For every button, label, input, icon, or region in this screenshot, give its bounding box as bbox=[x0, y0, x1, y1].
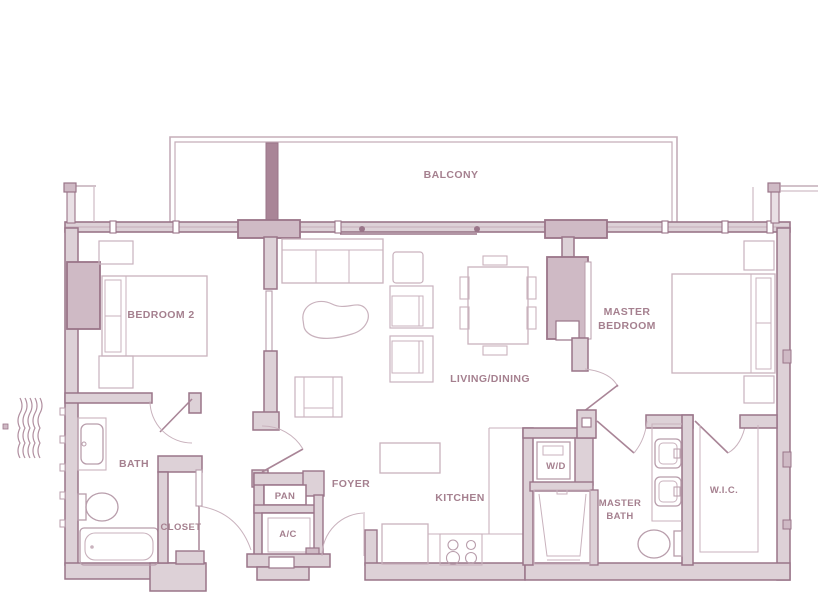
window-mullion bbox=[110, 221, 116, 233]
door-arc bbox=[199, 506, 251, 550]
double-vanity bbox=[652, 424, 682, 521]
closet-wall bbox=[254, 505, 316, 513]
balcony-rail-inner bbox=[175, 142, 672, 222]
wall-segment bbox=[65, 393, 152, 403]
laundry-label: W/D bbox=[546, 461, 566, 472]
closet-wall bbox=[158, 472, 168, 563]
room-master-bath: MASTER BATH bbox=[597, 415, 693, 565]
wic-label: W.I.C. bbox=[710, 485, 738, 496]
wall-segment bbox=[682, 415, 693, 565]
marker-square bbox=[3, 424, 8, 429]
window-mullion bbox=[335, 221, 341, 233]
bath-label: BATH bbox=[119, 458, 149, 470]
living-dining-label: LIVING/DINING bbox=[450, 373, 530, 385]
wall-tick bbox=[60, 520, 65, 527]
wall-jog bbox=[783, 520, 791, 529]
kitchen-island bbox=[380, 443, 440, 473]
room-laundry: W/D bbox=[523, 410, 598, 565]
toilet bbox=[78, 493, 118, 521]
burner bbox=[448, 540, 458, 550]
window-mullion bbox=[662, 221, 668, 233]
wall-stem bbox=[572, 338, 588, 371]
accent-chair-outline bbox=[295, 377, 342, 417]
master-wall bbox=[547, 237, 591, 371]
wall-segment bbox=[523, 428, 533, 565]
shower-outline bbox=[534, 490, 590, 564]
swing-door-leaf bbox=[262, 449, 303, 472]
floor-plan-page: BALCONY bbox=[0, 0, 821, 616]
room-kitchen: KITCHEN bbox=[380, 428, 523, 565]
faucet bbox=[82, 442, 86, 446]
room-living-dining: LIVING/DINING bbox=[282, 239, 536, 417]
bottom-wall-closet-step bbox=[150, 563, 206, 591]
room-foyer: FOYER bbox=[322, 478, 370, 556]
refrigerator bbox=[382, 524, 428, 564]
dining-set bbox=[460, 256, 536, 355]
sink bbox=[81, 424, 103, 464]
sofa-outline bbox=[282, 239, 383, 283]
room-master-bedroom: MASTER BEDROOM bbox=[547, 237, 775, 412]
burner bbox=[466, 553, 477, 564]
wall-segment bbox=[158, 456, 202, 472]
wall-segment bbox=[264, 351, 277, 413]
utility-closets: PAN A/C bbox=[247, 426, 330, 580]
shower-pan bbox=[539, 494, 586, 556]
master-bedroom-label-1: MASTER bbox=[604, 306, 651, 318]
toilet-bowl bbox=[638, 530, 670, 558]
wave-line bbox=[18, 398, 22, 458]
door-arc bbox=[585, 369, 618, 387]
toilet-tank bbox=[78, 494, 86, 520]
bed bbox=[672, 274, 775, 373]
kitchen-label: KITCHEN bbox=[435, 492, 484, 504]
swing-door-leaf bbox=[160, 399, 192, 432]
wave-line bbox=[23, 398, 27, 458]
entry-jamb bbox=[365, 530, 377, 565]
toilet bbox=[638, 530, 682, 558]
door-arc bbox=[150, 401, 192, 443]
wall-header-block bbox=[545, 220, 607, 238]
window-mullion bbox=[722, 221, 728, 233]
armchair bbox=[390, 336, 433, 382]
burner bbox=[467, 541, 476, 550]
swing-door-leaf bbox=[597, 421, 634, 453]
accent-chair bbox=[295, 377, 342, 417]
master-bath-label-1: MASTER bbox=[599, 498, 642, 509]
armchair-seat bbox=[392, 341, 423, 373]
wall-header-block bbox=[238, 220, 300, 238]
wave-line bbox=[38, 398, 42, 458]
window-mullion bbox=[173, 221, 179, 233]
pier-cap bbox=[64, 183, 76, 192]
armchair-outline bbox=[390, 336, 433, 382]
floor-plan-drawing: BALCONY bbox=[0, 0, 821, 616]
tub-basin bbox=[85, 533, 153, 560]
column-notch bbox=[556, 321, 579, 340]
nightstand bbox=[99, 356, 133, 388]
dining-chair bbox=[483, 256, 507, 265]
room-bath: BATH bbox=[78, 418, 158, 565]
master-bath-label-2: BATH bbox=[606, 511, 633, 522]
room-balcony: BALCONY bbox=[170, 137, 677, 223]
swing-door-leaf bbox=[583, 385, 618, 412]
dining-chair bbox=[483, 346, 507, 355]
structural-column bbox=[67, 262, 100, 329]
water-symbol bbox=[3, 398, 42, 458]
pocket-door-panel bbox=[266, 291, 272, 351]
coffee-table bbox=[303, 301, 369, 338]
sliding-door-handle bbox=[474, 226, 480, 232]
armchair bbox=[390, 286, 433, 328]
wave-line bbox=[33, 398, 37, 458]
shower-wall bbox=[590, 490, 598, 565]
wall-jog bbox=[783, 350, 791, 363]
ac-label: A/C bbox=[279, 529, 297, 540]
dining-table bbox=[468, 267, 528, 344]
closet-label: CLOSET bbox=[161, 522, 202, 533]
vanity bbox=[78, 418, 106, 470]
bedroom2-label: BEDROOM 2 bbox=[127, 309, 194, 321]
balcony-divider-wall bbox=[266, 143, 278, 223]
wall-jog bbox=[783, 452, 791, 467]
washer-dryer-controls bbox=[543, 446, 563, 455]
right-pier bbox=[753, 183, 818, 223]
nightstand bbox=[99, 241, 133, 264]
footing-notch bbox=[269, 557, 294, 568]
left-pier bbox=[64, 183, 96, 223]
stove bbox=[440, 534, 482, 565]
pantry-label: PAN bbox=[275, 491, 296, 502]
sofa bbox=[282, 239, 383, 283]
armchair-outline bbox=[390, 286, 433, 328]
shower bbox=[534, 490, 598, 565]
tub-drain bbox=[90, 545, 94, 549]
wall-segment bbox=[264, 237, 277, 289]
nightstand bbox=[744, 241, 774, 270]
wall-notch bbox=[582, 418, 591, 427]
foyer-label: FOYER bbox=[332, 478, 370, 490]
pier-cap bbox=[768, 183, 780, 192]
wall-face bbox=[196, 470, 202, 506]
wall-tick bbox=[60, 436, 65, 443]
ottoman bbox=[393, 252, 423, 283]
toilet-tank bbox=[674, 531, 682, 556]
wall-tick bbox=[60, 408, 65, 415]
toilet-bowl bbox=[86, 493, 118, 521]
wall-tick bbox=[60, 464, 65, 471]
door-arc bbox=[634, 421, 647, 453]
wall-segment bbox=[575, 438, 593, 485]
master-bedroom-label-2: BEDROOM bbox=[598, 320, 656, 332]
wave-line bbox=[28, 398, 32, 458]
armchair-seat bbox=[392, 296, 423, 326]
balcony-label: BALCONY bbox=[424, 169, 479, 181]
room-wic: W.I.C. bbox=[695, 415, 777, 552]
door-jamb bbox=[189, 393, 201, 413]
nightstand bbox=[744, 376, 774, 403]
bathtub bbox=[80, 528, 158, 565]
entry-door-arc bbox=[322, 513, 365, 556]
bottom-wall-right bbox=[525, 563, 790, 580]
closet-footing-step bbox=[257, 567, 309, 580]
room-closet: CLOSET bbox=[158, 456, 251, 563]
bedroom2-wall bbox=[253, 237, 279, 430]
pocket-door-panel bbox=[585, 262, 591, 339]
door-jamb bbox=[176, 551, 204, 564]
sliding-door-handle bbox=[359, 226, 365, 232]
wall-tick bbox=[60, 492, 65, 499]
